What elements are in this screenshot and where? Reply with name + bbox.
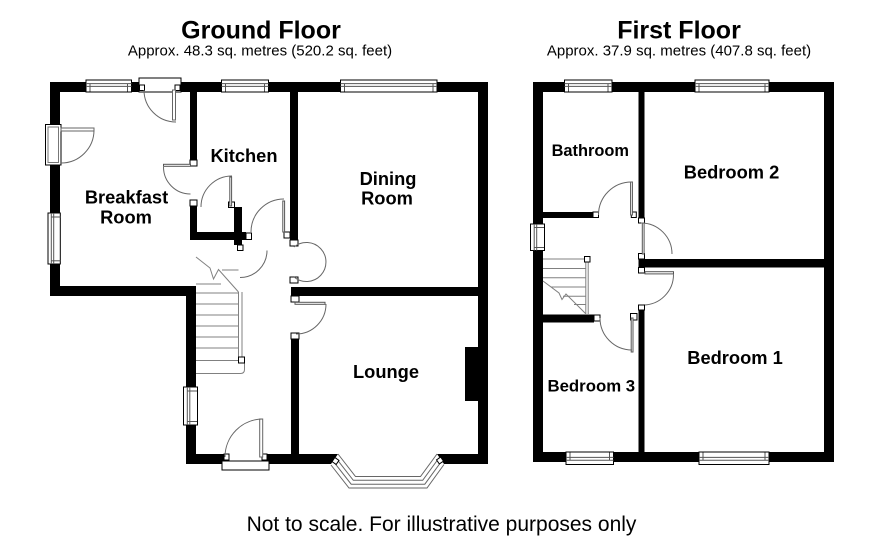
svg-text:Bedroom 1: Bedroom 1 bbox=[687, 347, 783, 368]
svg-text:First Floor: First Floor bbox=[617, 17, 741, 45]
svg-text:Lounge: Lounge bbox=[353, 361, 419, 382]
svg-text:Bedroom 3: Bedroom 3 bbox=[547, 377, 635, 396]
svg-text:Bathroom: Bathroom bbox=[552, 142, 629, 160]
svg-text:Kitchen: Kitchen bbox=[210, 145, 277, 166]
svg-text:Room: Room bbox=[100, 207, 152, 228]
svg-text:Approx. 37.9 sq. metres (407.8: Approx. 37.9 sq. metres (407.8 sq. feet) bbox=[547, 43, 811, 60]
svg-text:Dining: Dining bbox=[360, 168, 417, 189]
svg-text:Bedroom 2: Bedroom 2 bbox=[684, 162, 780, 183]
svg-text:Breakfast: Breakfast bbox=[85, 187, 168, 208]
svg-text:Room: Room bbox=[361, 188, 413, 209]
svg-text:Ground Floor: Ground Floor bbox=[181, 17, 341, 45]
svg-text:Approx. 48.3 sq. metres (520.2: Approx. 48.3 sq. metres (520.2 sq. feet) bbox=[128, 43, 392, 60]
svg-text:Not to scale. For illustrative: Not to scale. For illustrative purposes … bbox=[247, 513, 637, 536]
